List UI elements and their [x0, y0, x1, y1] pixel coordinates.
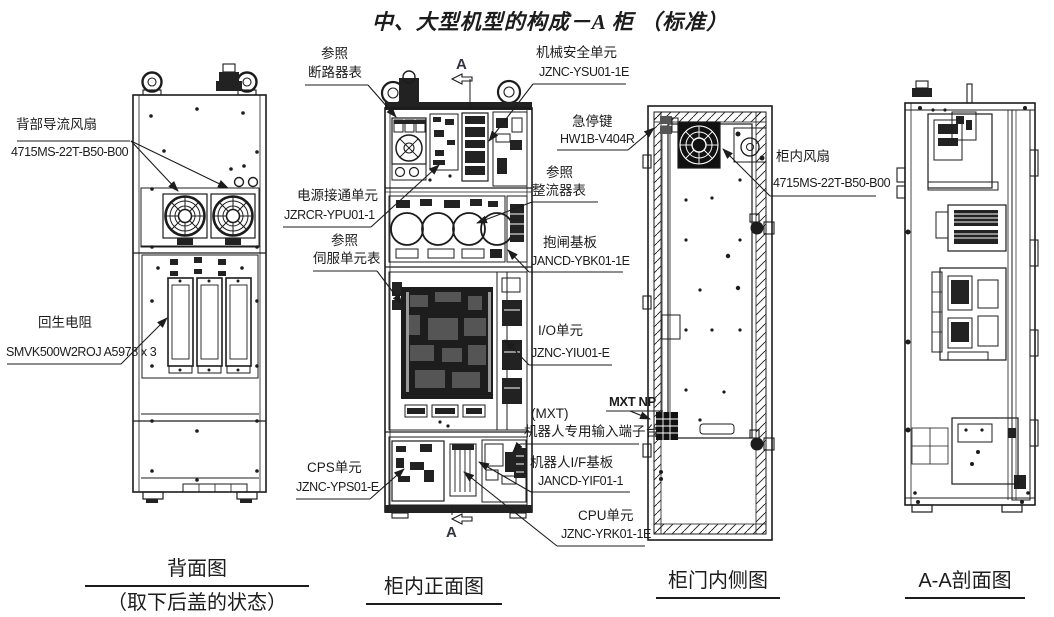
label-mxt-np: MXT NP: [609, 395, 656, 409]
caption-front-view: 柜内正面图: [366, 570, 502, 605]
diagram-page: 中、大型机型的构成－A 柜 （标准） A A 背部导流风扇 4715MS-22T…: [0, 0, 1054, 617]
label-brake-board-part: JANCD-YBK01-1E: [531, 255, 630, 268]
label-cabinet-fan-part: 4715MS-22T-B50-B00: [773, 177, 890, 190]
label-safety-unit-name: 机械安全单元: [536, 46, 617, 60]
caption-rear-view: 背面图: [85, 552, 309, 587]
label-regen-resistor-part: SMVK500W2ROJ A5978 x 3: [6, 346, 156, 359]
label-cpu-unit-name: CPU单元: [578, 509, 634, 523]
technical-drawing: [0, 0, 1054, 617]
rear-view-drawing: [133, 64, 266, 503]
caption-section-view: A-A剖面图: [905, 564, 1025, 599]
label-robot-if-board-part: JANCD-YIF01-1: [538, 475, 623, 488]
label-rectifier-ref-line2: 整流器表: [532, 184, 586, 198]
label-servo-ref-line1: 参照: [331, 234, 358, 248]
section-marker-a-top: A: [456, 56, 467, 73]
label-cpu-unit-part: JZNC-YRK01-1E: [561, 528, 651, 541]
label-mxt-terminal-line2: 机器人专用输入端子台: [524, 425, 659, 439]
label-cps-unit-part: JZNC-YPS01-E: [296, 481, 379, 494]
label-breaker-ref-line1: 参照: [321, 47, 348, 61]
label-breaker-ref-line2: 断路器表: [308, 66, 362, 80]
label-estop-key-part: HW1B-V404R: [560, 133, 635, 146]
page-title: 中、大型机型的构成－A 柜 （标准）: [300, 6, 800, 36]
front-view-drawing: [382, 71, 532, 524]
label-power-on-unit-name: 电源接通单元: [297, 189, 378, 203]
label-robot-if-board-name: 机器人I/F基板: [530, 456, 613, 470]
label-power-on-unit-part: JZRCR-YPU01-1: [284, 209, 375, 222]
caption-rear-view-note: （取下后盖的状态）: [85, 586, 309, 615]
label-brake-board-name: 抱闸基板: [543, 236, 597, 250]
label-io-unit-name: I/O单元: [538, 324, 583, 338]
door-view-drawing: [643, 106, 774, 540]
label-io-unit-part: JZNC-YIU01-E: [531, 347, 610, 360]
label-safety-unit-part: JZNC-YSU01-1E: [539, 66, 629, 79]
label-cps-unit-name: CPS单元: [307, 461, 362, 475]
label-mxt-terminal-line1: (MXT): [531, 407, 569, 421]
section-view-drawing: [897, 81, 1038, 512]
label-cabinet-fan-name: 柜内风扇: [776, 150, 830, 164]
section-marker-a-bottom: A: [446, 524, 457, 541]
caption-door-view: 柜门内侧图: [656, 564, 780, 599]
label-rectifier-ref-line1: 参照: [546, 166, 573, 180]
label-estop-key-name: 急停键: [572, 115, 613, 129]
label-regen-resistor-name: 回生电阻: [38, 316, 92, 330]
label-servo-ref-line2: 伺服单元表: [313, 252, 381, 266]
label-rear-fan-name: 背部导流风扇: [16, 118, 97, 132]
label-rear-fan-part: 4715MS-22T-B50-B00: [11, 146, 128, 159]
